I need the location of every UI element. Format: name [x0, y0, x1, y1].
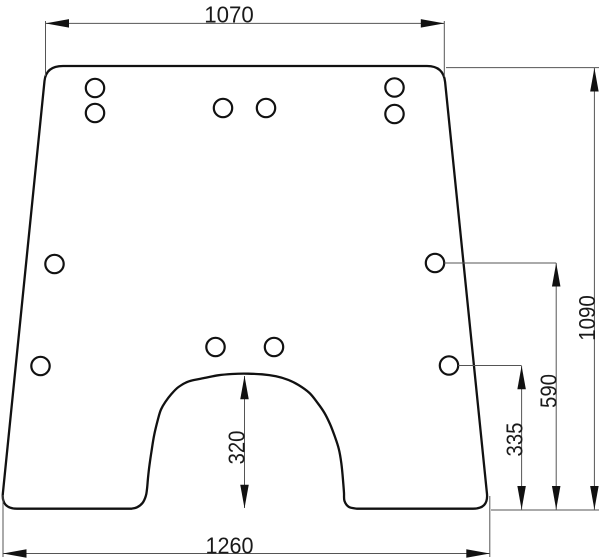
svg-text:1260: 1260 [206, 533, 254, 558]
svg-text:590: 590 [536, 374, 562, 408]
svg-text:1090: 1090 [574, 295, 600, 341]
svg-text:1070: 1070 [204, 2, 254, 28]
svg-text:320: 320 [224, 431, 250, 465]
svg-text:335: 335 [502, 423, 528, 457]
